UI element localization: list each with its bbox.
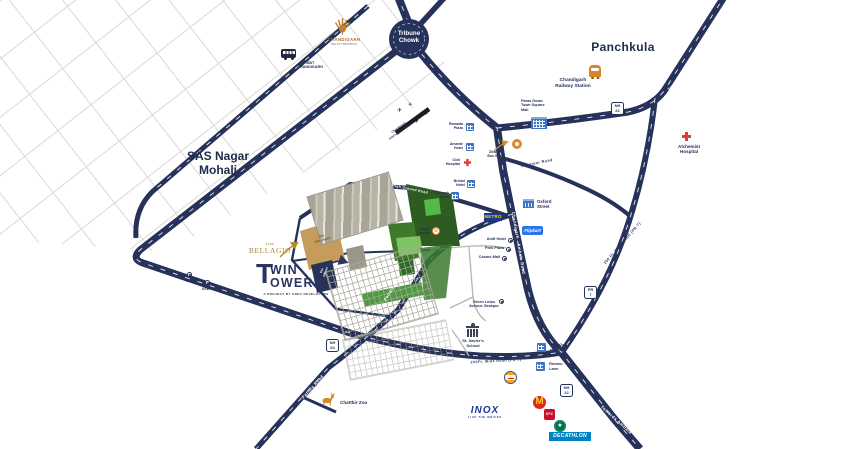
st-xaviers-label: St. Xavier's School [451,339,495,348]
nh64-badge: NH 64 [326,339,339,352]
flipkart-logo: Flipkart [522,226,543,235]
map-pin-icon [187,272,192,277]
roads-layer: ✈ ✈ ✈ ✈ ✈ [0,0,850,449]
area-label-panchkula: Panchkula [573,40,673,54]
bus-icon [281,49,296,58]
chandigarh-city-subtitle: THE CITY BEAUTIFUL [322,44,366,47]
bristol-hotel-label: Bristol Hotel [440,179,465,187]
map-pin-icon [506,247,511,252]
pr7-badge: PR 7 [584,286,597,299]
mcdonalds-icon: M [533,396,546,409]
cosmo-mall-label: Cosmo Mall [474,255,500,259]
bus-stand-icon [512,139,522,149]
alchemist-hospital-label: Alchemist Hospital [664,144,714,155]
shop-icon [523,199,534,208]
gopal-sweets-icon [432,227,440,235]
hotel-icon [466,143,474,151]
inox-tagline: LIVE THE MOVIES [467,417,503,420]
paras-mall-label: Paras Down Town Square Mall [521,99,553,112]
svg-text:✈: ✈ [408,102,412,108]
map-pin-icon [508,238,513,243]
hotel-icon [467,180,475,188]
hospital-cross-icon [464,159,471,166]
isb-label: ISB [177,279,201,283]
aloft-hotel-label: Aloft Hotel [480,237,506,241]
hotel-icon [466,123,474,131]
amante-hotel-label: Amante Hotel [437,142,463,150]
nh22-badge-top: NH 22 [611,102,624,115]
twin-towers-logo: T WIN OWERS A PROJECT BY AREV DEVELOPERS [256,261,336,301]
mall-icon [531,117,547,129]
metro-logo: METRO [484,213,502,221]
area-label-sas-nagar-mohali: SAS Nagar Mohali [168,149,268,177]
zirakpur-bus-stand-label: Zirakpur Bus Stand [483,150,509,158]
school-icon [467,329,478,337]
gopal-sweets-label: Gopal Sweets [404,227,430,235]
twin-towers-tagline: A PROJECT BY AREV DEVELOPERS [258,292,334,296]
map-pin-icon [499,299,504,304]
twin-towers-owers: OWERS [270,276,323,290]
civil-hospital-label: Civil Hospital [434,158,460,166]
map-pin-icon [502,256,507,261]
park-plaza-label: Park Plaza [478,246,504,250]
location-map: ✈ ✈ ✈ ✈ ✈ [0,0,850,449]
inox-wordmark: INOX [471,405,499,416]
ramada-plaza-label: Ramada Plaza [437,122,463,130]
sunpark-hotel-label: Sunpark Hotel [424,191,449,199]
hotel-icon [451,192,459,200]
twin-towers-win: WIN [270,263,298,277]
burger-king-icon [504,371,517,384]
hotel-icon [537,343,546,352]
iiser-label: IISER [195,287,219,291]
kleo-hotel-label: The Kleo Hotel [550,343,578,352]
svg-text:✈: ✈ [397,107,402,114]
kfc-icon: KFC [544,409,555,420]
oxford-street-label: Oxford Street [537,199,565,209]
starbucks-icon [554,420,566,432]
isbt-label: ISBT CHANDIGARH [294,61,326,70]
map-pin-icon [205,280,210,285]
decathlon-logo: DECATHLON [549,432,591,441]
hospital-cross-icon [682,132,691,141]
romeo-lane-label: Romeo Lane [549,362,577,371]
railway-station-label: Chandigarh Railway Station [549,78,597,89]
inox-logo: INOX LIVE THE MOVIES [467,406,503,419]
bellagio-name: BELLAGIO [246,246,294,255]
tribune-chowk-label: Tribune Chowk [387,30,431,45]
hotel-icon [536,362,545,371]
bellagio-callout: THE BELLAGIO [246,242,294,255]
deer-icon [323,393,335,406]
nh22-badge-bottom: NH 22 [560,384,573,397]
train-icon [589,65,601,77]
chattbir-zoo-label: Chattbir Zoo [340,400,384,405]
